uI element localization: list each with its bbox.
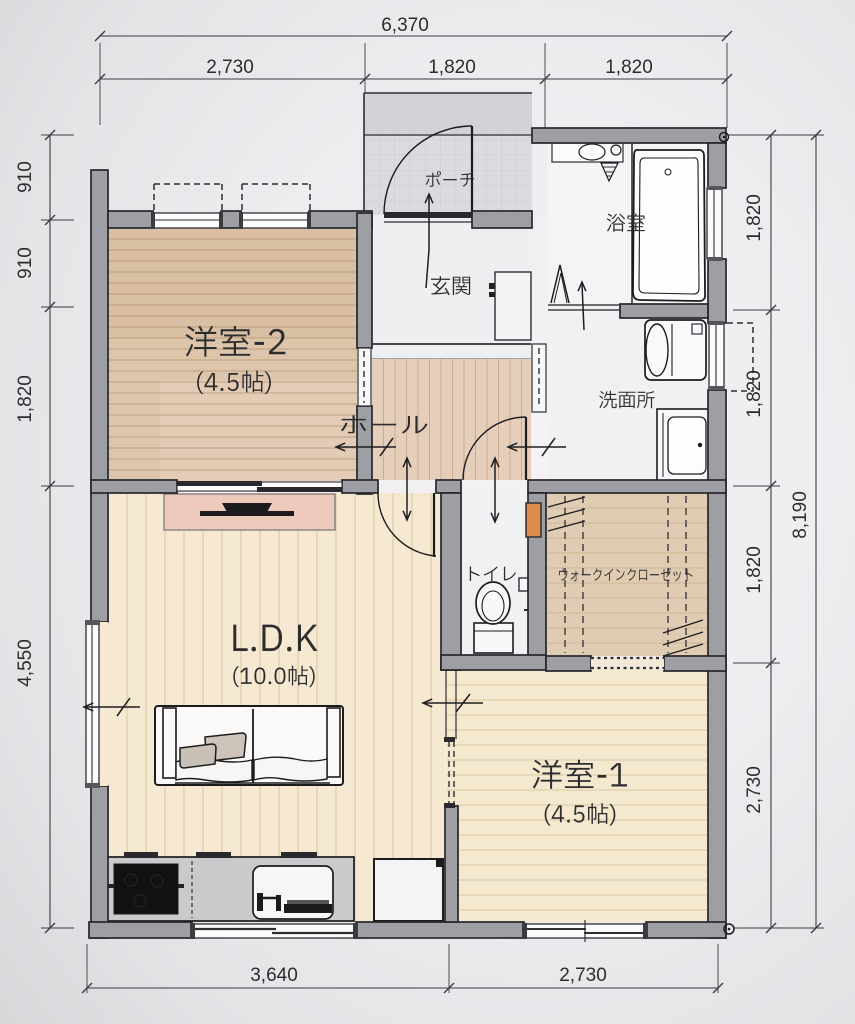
svg-text:2,730: 2,730 <box>744 766 765 814</box>
svg-text:3,640: 3,640 <box>250 965 298 986</box>
svg-text:1,820: 1,820 <box>744 370 765 418</box>
svg-text:1,820: 1,820 <box>428 57 476 78</box>
svg-text:4,550: 4,550 <box>15 639 36 687</box>
svg-text:2,730: 2,730 <box>559 965 607 986</box>
svg-text:2,730: 2,730 <box>206 57 254 78</box>
svg-text:1,820: 1,820 <box>15 375 36 423</box>
svg-text:1,820: 1,820 <box>605 57 653 78</box>
svg-text:6,370: 6,370 <box>381 15 429 36</box>
svg-text:1,820: 1,820 <box>744 546 765 594</box>
svg-text:910: 910 <box>15 247 36 279</box>
svg-text:1,820: 1,820 <box>744 194 765 242</box>
svg-text:8,190: 8,190 <box>790 491 811 539</box>
svg-text:910: 910 <box>15 161 36 193</box>
